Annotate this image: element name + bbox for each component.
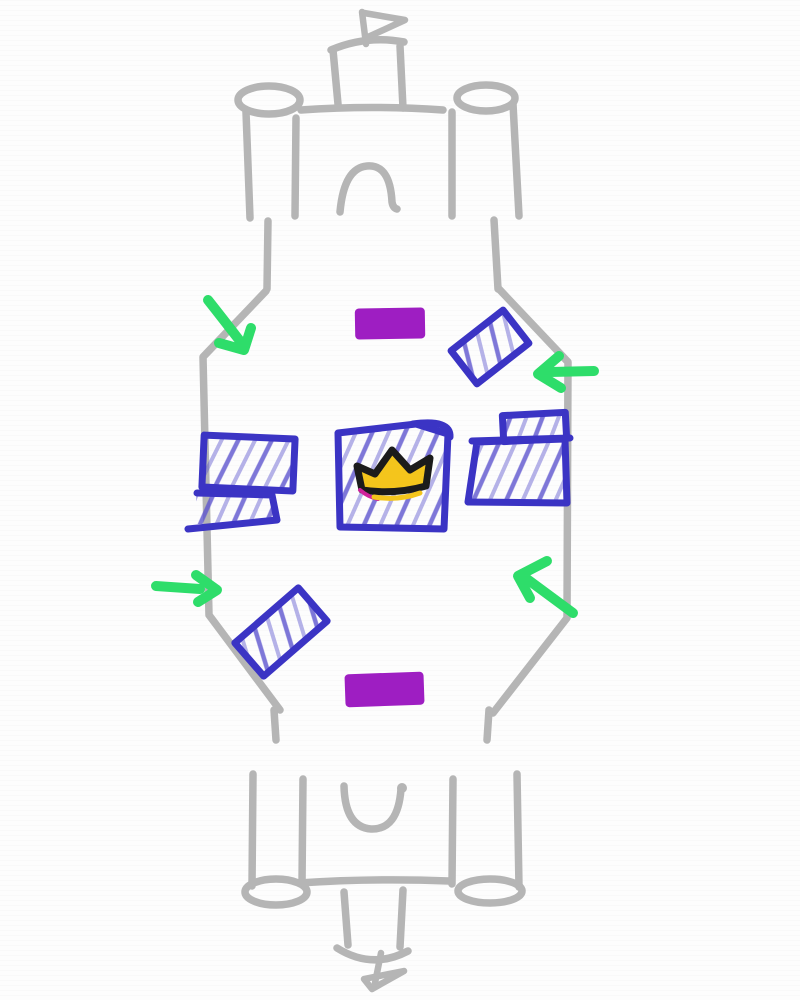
- bottom-castle: [245, 710, 522, 989]
- top-castle-wall-top: [301, 108, 443, 111]
- cover-block-top-right-angled: [451, 310, 529, 384]
- center-objective: [338, 423, 450, 529]
- bottom-castle-right-tower-cap: [458, 879, 522, 903]
- arrow-mid-left: [156, 575, 217, 602]
- top-castle-right-tower-cap: [457, 85, 515, 111]
- top-castle-gate-arch: [340, 166, 397, 212]
- bottom-castle-right-tower-walls: [452, 774, 519, 887]
- arrow-top-left: [208, 300, 251, 350]
- cover-block-bottom-left-angled: [235, 588, 327, 676]
- bottom-castle-flag-pennant-icon: [364, 971, 404, 989]
- bottom-castle-gate-arch: [344, 786, 401, 829]
- top-castle-lower-walls: [267, 220, 498, 289]
- bottom-castle-upper-walls: [274, 710, 489, 740]
- top-castle-flag-pole: [362, 12, 366, 44]
- cover-block-left-upper: [202, 435, 295, 491]
- spawn-pad-bottom: [344, 672, 424, 708]
- cover-block-left-lower: [188, 493, 277, 529]
- top-castle-flag-pennant-icon: [364, 13, 405, 37]
- bottom-castle-wall-base: [299, 880, 449, 883]
- cover-block-right-lower: [468, 439, 567, 503]
- arena-sketch-canvas: [0, 0, 800, 1000]
- top-castle-right-tower-walls: [452, 104, 519, 216]
- spawn-pad-top: [355, 307, 426, 339]
- top-castle-left-tower-walls: [246, 112, 296, 218]
- top-castle-flag-tower: [331, 40, 404, 108]
- top-castle: [238, 12, 519, 289]
- bottom-castle-gate-knob: [397, 783, 407, 793]
- bottom-castle-left-tower-walls: [252, 774, 303, 886]
- bottom-castle-flag-tower: [337, 890, 408, 960]
